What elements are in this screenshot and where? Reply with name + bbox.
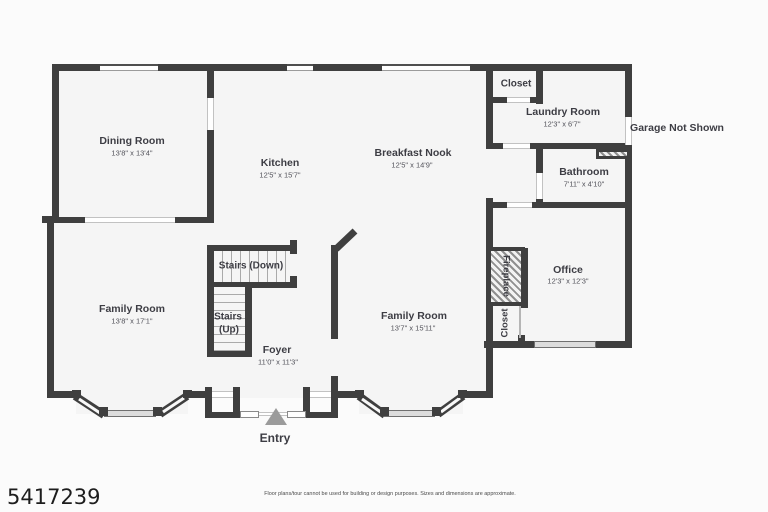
entry-step-right: [287, 411, 306, 418]
wall-left-lower: [47, 216, 54, 398]
wall-foyer-right-a: [331, 245, 338, 339]
label-stairs-up-1: Stairs: [214, 312, 242, 323]
wall-closet-top-bottom-a: [486, 97, 507, 103]
entry-step-left: [240, 411, 259, 418]
door-office: [507, 202, 532, 208]
wall-stairsdown-cap-bottom: [290, 276, 297, 288]
dims-family-room-right: 13'7" x 15'11": [391, 324, 436, 333]
window-kitchen: [287, 64, 313, 71]
dims-breakfast-nook: 12'5" x 14'9": [391, 161, 432, 170]
porch-left-window: [212, 391, 233, 398]
label-fireplace: Fireplace: [501, 255, 512, 297]
wall-office-top-a: [486, 202, 507, 208]
wall-stairsup-right: [245, 287, 252, 357]
label-stairs-down: Stairs (Down): [219, 261, 283, 272]
label-family-room-left: Family Room: [99, 303, 165, 315]
door-closet-top: [507, 97, 530, 103]
wall-dining-kitchen-b: [207, 130, 214, 223]
wall-stairs-left: [207, 245, 214, 357]
opening-dining-family: [85, 217, 175, 223]
label-stairs-up-2: (Up): [219, 325, 239, 336]
window-breakfast: [382, 64, 470, 71]
wall-laundry-bottom-a: [486, 143, 503, 149]
wall-bottom-left: [47, 391, 78, 398]
door-bathroom: [536, 173, 543, 199]
porch-left-bottom: [205, 412, 240, 418]
label-kitchen: Kitchen: [261, 157, 300, 169]
window-dining: [100, 64, 158, 71]
porch-right-window: [310, 391, 331, 398]
wall-office-bottom-b: [596, 341, 632, 348]
label-breakfast-nook: Breakfast Nook: [374, 147, 451, 159]
dims-office: 12'3" x 12'3": [547, 277, 588, 286]
wall-office-top-b: [532, 202, 632, 208]
label-entry: Entry: [260, 431, 291, 445]
dims-kitchen: 12'5" x 15'7": [259, 171, 300, 180]
dims-family-room-left: 13'8" x 17'1": [111, 317, 152, 326]
door-laundry: [503, 143, 530, 149]
entry-arrow-icon: [265, 408, 287, 425]
wall-bathroom-left: [536, 143, 543, 173]
wall-stairsup-bottom: [207, 351, 252, 357]
wall-office-bottom-a: [484, 341, 534, 348]
dims-foyer: 11'0" x 11'3": [258, 358, 298, 367]
dims-bathroom: 7'11" x 4'10": [564, 180, 605, 189]
wall-dining-bottom-a: [47, 217, 85, 223]
label-bathroom: Bathroom: [559, 166, 609, 178]
listing-number: 5417239: [7, 485, 101, 509]
dims-laundry-room: 12'3" x 6'7": [544, 120, 581, 129]
disclaimer-text: Floor plans/tour cannot be used for buil…: [264, 491, 516, 496]
wall-breakfast-right: [486, 64, 493, 149]
wall-left-upper: [52, 64, 59, 223]
floor-plan: Dining Room 13'8" x 13'4" Kitchen 12'5" …: [0, 0, 768, 512]
wall-bottom-midright: [338, 391, 360, 398]
wall-dining-kitchen-a: [207, 64, 214, 98]
porch-right-bottom: [303, 412, 338, 418]
label-office: Office: [553, 264, 583, 276]
wall-closet-top-bottom-b: [530, 97, 543, 103]
door-dining-kitchen: [207, 98, 214, 130]
bathroom-counter: [596, 149, 630, 159]
label-garage-note: Garage Not Shown: [630, 122, 724, 134]
label-laundry-room: Laundry Room: [526, 106, 600, 118]
label-closet-top: Closet: [501, 79, 532, 90]
label-closet-bottom: Closet: [500, 308, 511, 337]
closet-bottom-door-line: [519, 306, 521, 338]
dims-dining-room: 13'8" x 13'4": [111, 149, 152, 158]
label-dining-room: Dining Room: [99, 135, 164, 147]
wall-dining-bottom-b: [175, 217, 214, 223]
wall-stairsdown-cap-top: [290, 240, 297, 254]
window-bay-left-flat: [104, 410, 156, 417]
label-foyer: Foyer: [263, 344, 292, 356]
window-bay-right-flat: [384, 410, 435, 417]
window-office-bottom: [534, 341, 596, 348]
label-family-room-right: Family Room: [381, 310, 447, 322]
